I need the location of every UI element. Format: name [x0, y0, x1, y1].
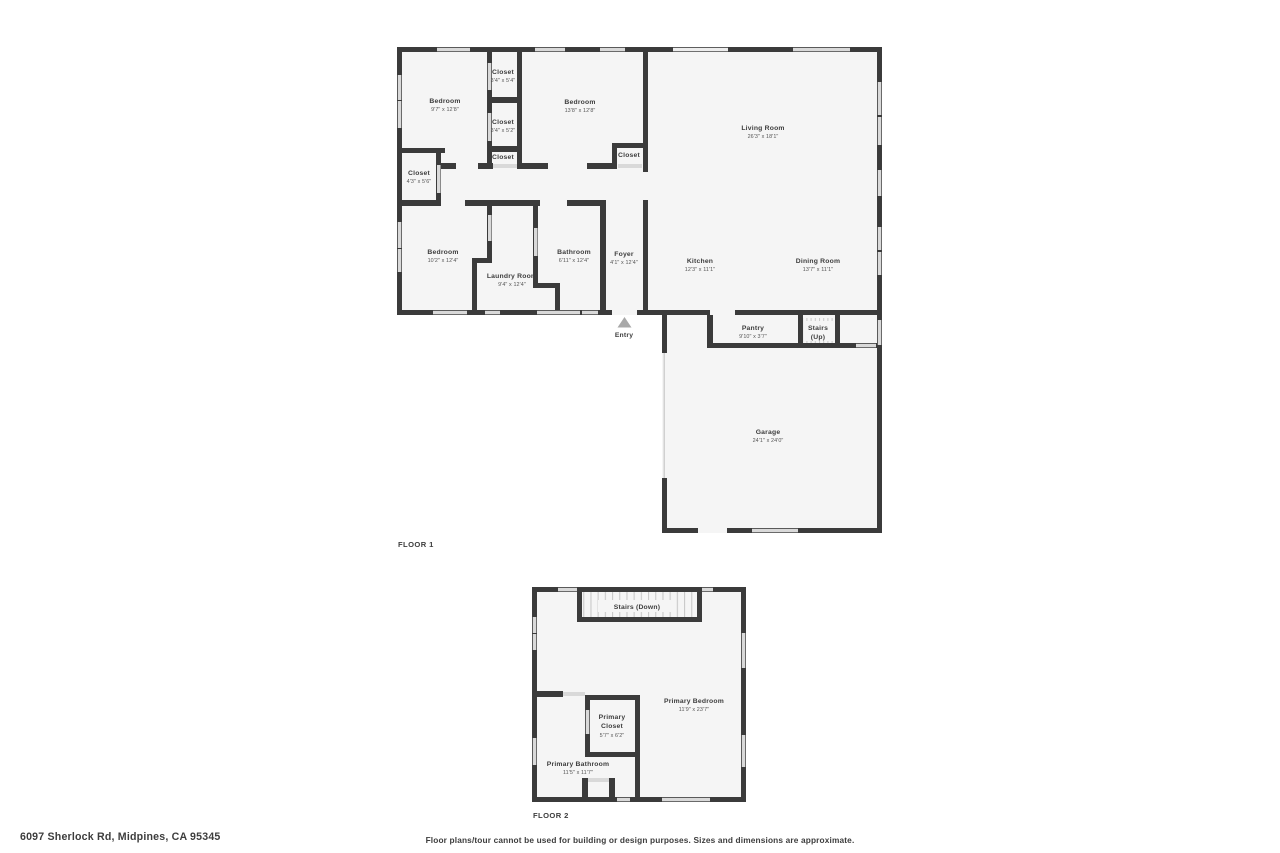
svg-text:3'4" x 5'4": 3'4" x 5'4"	[491, 78, 516, 84]
svg-text:3'4" x 5'2": 3'4" x 5'2"	[491, 128, 516, 134]
svg-text:(Up): (Up)	[811, 334, 825, 341]
room-label-stairs-down: Stairs (Down)	[614, 604, 660, 611]
floor-plan-image: Bedroom 9'7" x 12'8" Closet 3'4" x 5'4" …	[0, 0, 1280, 853]
floor1-areas	[397, 47, 882, 533]
svg-text:Primary Bathroom: Primary Bathroom	[547, 761, 610, 768]
svg-text:9'10" x 3'7": 9'10" x 3'7"	[739, 334, 767, 340]
svg-text:Closet: Closet	[601, 723, 624, 730]
svg-text:Laundry Room: Laundry Room	[487, 273, 537, 280]
svg-text:4'3" x 5'6": 4'3" x 5'6"	[407, 179, 432, 185]
svg-text:Dining Room: Dining Room	[796, 258, 841, 265]
entry-marker-icon	[618, 317, 632, 328]
svg-text:13'8" x 12'8": 13'8" x 12'8"	[565, 108, 596, 114]
svg-text:5'7" x 6'2": 5'7" x 6'2"	[600, 733, 625, 739]
svg-text:Living Room: Living Room	[741, 125, 784, 132]
svg-text:Primary: Primary	[599, 714, 626, 721]
floor1-caption: FLOOR 1	[398, 540, 434, 549]
svg-text:Closet: Closet	[618, 152, 641, 159]
disclaimer-text: Floor plans/tour cannot be used for buil…	[0, 835, 1280, 845]
room-label-closet-hall: Closet	[492, 154, 515, 161]
svg-text:Bedroom: Bedroom	[427, 249, 458, 256]
svg-text:Bedroom: Bedroom	[564, 99, 595, 106]
svg-text:4'1" x 12'4": 4'1" x 12'4"	[610, 260, 638, 266]
svg-text:Kitchen: Kitchen	[687, 258, 713, 265]
floor-plan-page: Bedroom 9'7" x 12'8" Closet 3'4" x 5'4" …	[0, 0, 1280, 853]
svg-text:Bedroom: Bedroom	[429, 98, 460, 105]
floor2-plan: Stairs (Down) Primary Bedroom 11'9" x 23…	[532, 587, 746, 820]
svg-text:Closet: Closet	[408, 170, 431, 177]
svg-text:11'5" x 11'7": 11'5" x 11'7"	[563, 770, 593, 776]
svg-text:11'9" x 23'7": 11'9" x 23'7"	[679, 707, 709, 713]
svg-text:6'11" x 12'4": 6'11" x 12'4"	[559, 258, 589, 264]
svg-text:10'2" x 12'4": 10'2" x 12'4"	[428, 258, 459, 264]
entry-label: Entry	[615, 332, 633, 339]
svg-text:12'3" x 11'1": 12'3" x 11'1"	[685, 267, 715, 273]
svg-text:26'3" x 18'1": 26'3" x 18'1"	[748, 134, 779, 140]
room-label-closet-bedroom2: Closet	[618, 152, 641, 159]
svg-text:9'7" x 12'8": 9'7" x 12'8"	[431, 107, 459, 113]
svg-text:Pantry: Pantry	[742, 325, 764, 332]
svg-text:Bathroom: Bathroom	[557, 249, 591, 256]
svg-text:9'4" x 12'4": 9'4" x 12'4"	[498, 282, 526, 288]
room-label-primary-closet: Primary Closet 5'7" x 6'2"	[599, 714, 626, 739]
svg-text:Foyer: Foyer	[614, 251, 634, 258]
svg-text:Closet: Closet	[492, 119, 515, 126]
svg-text:24'1" x 24'0": 24'1" x 24'0"	[753, 438, 784, 444]
svg-text:Garage: Garage	[756, 429, 781, 436]
svg-text:Stairs: Stairs	[808, 325, 828, 332]
svg-text:Closet: Closet	[492, 154, 515, 161]
svg-text:13'7" x 11'1": 13'7" x 11'1"	[803, 267, 833, 273]
svg-text:Primary Bedroom: Primary Bedroom	[664, 698, 724, 705]
floor1-plan: Bedroom 9'7" x 12'8" Closet 3'4" x 5'4" …	[397, 47, 882, 549]
svg-text:Closet: Closet	[492, 69, 515, 76]
floor2-caption: FLOOR 2	[533, 811, 569, 820]
